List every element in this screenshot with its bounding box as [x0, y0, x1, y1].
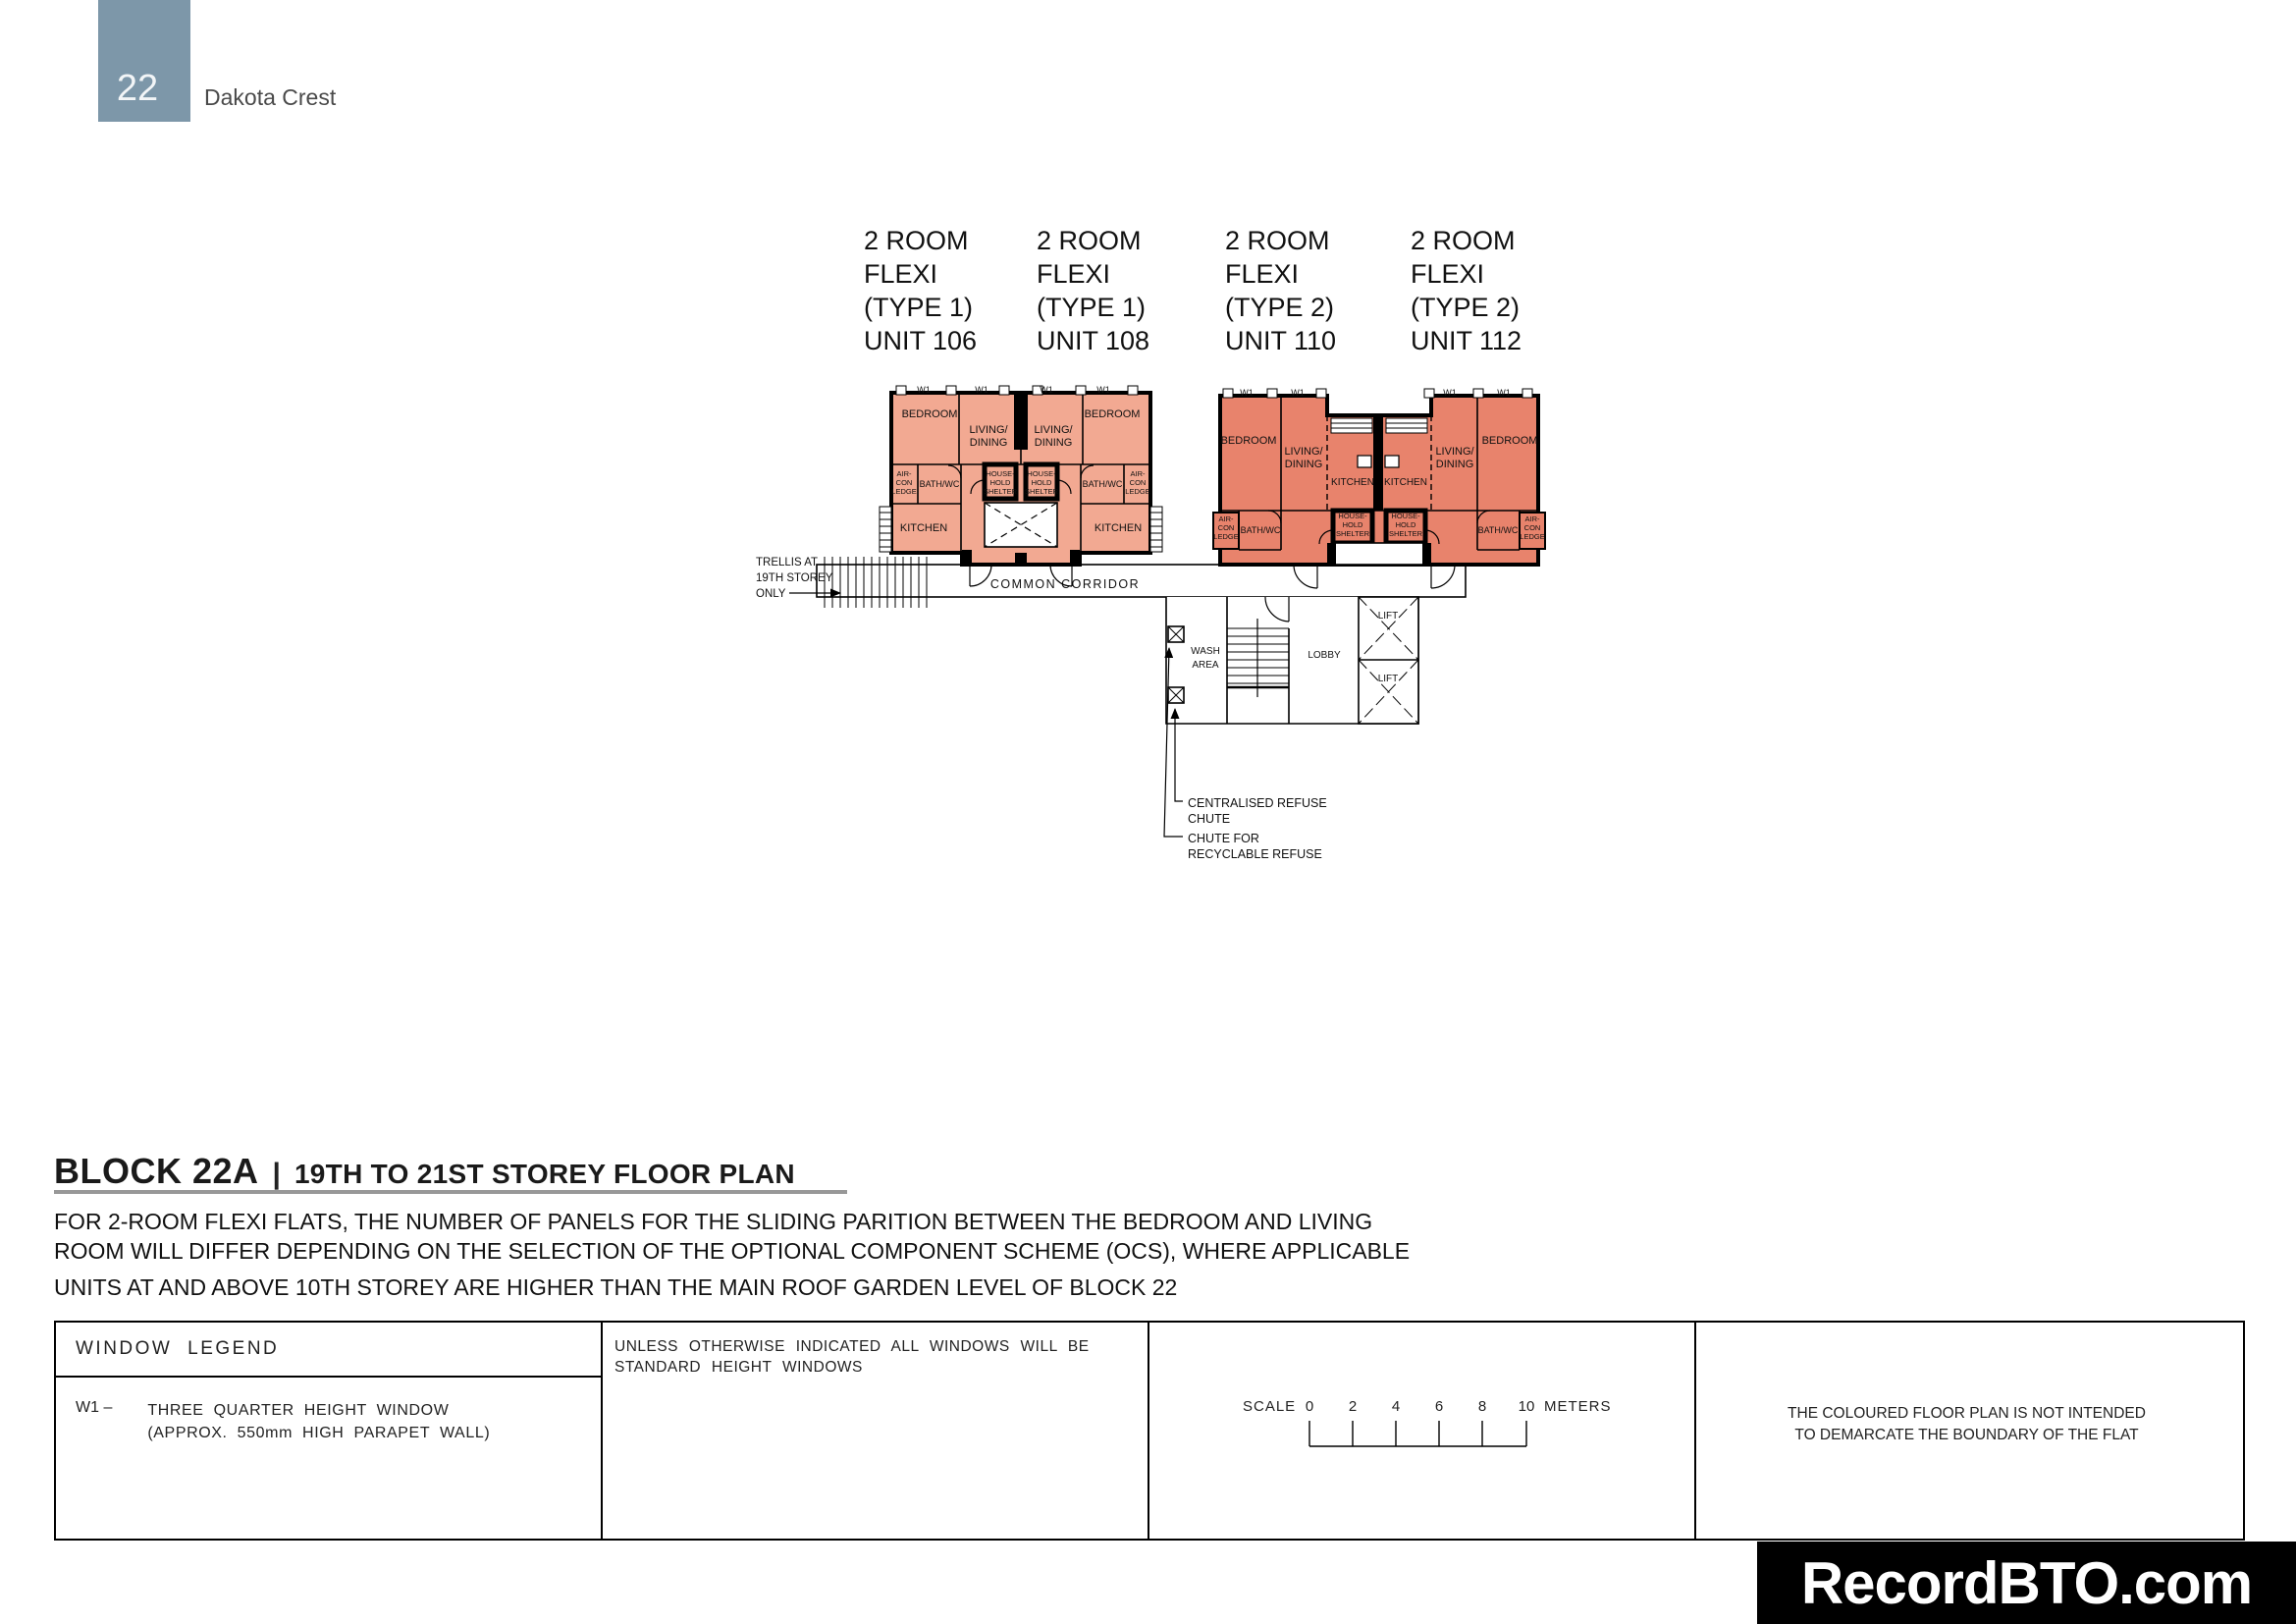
legend-divider	[56, 1376, 601, 1378]
unit-label-112: 2 ROOM FLEXI (TYPE 2) UNIT 112	[1411, 224, 1597, 357]
room-label-shelter: SHELTER	[1025, 487, 1059, 496]
unit-label-106: 2 ROOM FLEXI (TYPE 1) UNIT 106	[864, 224, 1050, 357]
room-label-shelter: HOUSE-	[1391, 512, 1420, 520]
block-type1: W1 W1 W1 W1 BEDROOM BEDROOM LIVING/ DINI…	[880, 385, 1162, 586]
room-label-kitchen: KITCHEN	[1384, 477, 1427, 488]
room-label-aircon: LEDGE	[1213, 532, 1238, 541]
note-line: UNITS AT AND ABOVE 10TH STOREY ARE HIGHE…	[54, 1274, 1177, 1301]
window-tag: W1	[975, 385, 988, 395]
watermark-text: RecordBTO.com	[1801, 1549, 2252, 1617]
unit-label-line: (TYPE 2)	[1411, 291, 1597, 324]
room-label-living: DINING	[1436, 459, 1474, 470]
room-label-living: DINING	[1035, 437, 1073, 449]
room-label-aircon: AIR-	[897, 469, 913, 478]
windows-note: STANDARD HEIGHT WINDOWS	[614, 1357, 1090, 1378]
trellis-label: 19TH STOREY	[756, 572, 833, 584]
common-corridor: COMMON CORRIDOR	[817, 565, 1466, 597]
scale-tick-label: 4	[1392, 1398, 1400, 1415]
room-label-living: DINING	[1285, 459, 1323, 470]
room-label-shelter: HOLD	[1343, 520, 1363, 529]
trellis-annotation: TRELLIS AT 19TH STOREY ONLY	[756, 557, 840, 600]
w1-code: W1 –	[76, 1399, 112, 1444]
room-label-living: LIVING/	[1435, 446, 1474, 458]
room-label-shelter: HOUSE-	[986, 469, 1015, 478]
unit-label-line: (TYPE 1)	[1037, 291, 1223, 324]
lifts: LIFT LIFT	[1359, 597, 1418, 724]
note-line: FOR 2-ROOM FLEXI FLATS, THE NUMBER OF PA…	[54, 1209, 1372, 1235]
windows-note: UNLESS OTHERWISE INDICATED ALL WINDOWS W…	[614, 1336, 1090, 1357]
disclaimer-line: THE COLOURED FLOOR PLAN IS NOT INTENDED	[1696, 1403, 2237, 1425]
room-label-aircon: AIR-	[1219, 514, 1235, 523]
unit-label-line: FLEXI	[1225, 257, 1412, 291]
lobby-label: LOBBY	[1308, 650, 1341, 661]
lift-label: LIFT	[1378, 611, 1399, 622]
window-tag: W1	[1096, 385, 1110, 395]
project-name: Dakota Crest	[204, 84, 336, 111]
room-label-aircon: CON	[1218, 523, 1235, 532]
floor-plan-page: 22 Dakota Crest 2 ROOM FLEXI (TYPE 1) UN…	[0, 0, 2296, 1624]
scale-bar: SCALE 0 2 4 6 8 10 METERS	[1149, 1323, 1694, 1535]
plan-title: BLOCK 22A | 19TH TO 21ST STOREY FLOOR PL…	[54, 1151, 795, 1192]
room-label-aircon: CON	[1524, 523, 1541, 532]
title-separator: |	[273, 1158, 281, 1191]
trellis-label: TRELLIS AT	[756, 557, 818, 568]
unit-label-line: 2 ROOM	[1037, 224, 1223, 257]
room-label-living: LIVING/	[1034, 424, 1073, 436]
wash-area-label: WASH	[1191, 646, 1220, 657]
core: LIFT LIFT WASH AREA LOBBY	[1166, 597, 1418, 724]
room-label-aircon: CON	[1130, 478, 1147, 487]
chute-label: CHUTE	[1188, 812, 1230, 826]
window-tag: W1	[1040, 385, 1053, 395]
room-label-shelter: HOLD	[1396, 520, 1416, 529]
legend-table: WINDOW LEGEND W1 – THREE QUARTER HEIGHT …	[54, 1321, 2245, 1541]
scale-tick-label: 8	[1478, 1398, 1486, 1415]
lift-label: LIFT	[1378, 674, 1399, 684]
storey-subtitle: 19TH TO 21ST STOREY FLOOR PLAN	[294, 1159, 795, 1190]
room-label-bedroom: BEDROOM	[1482, 435, 1538, 447]
scale-tick-label: 2	[1349, 1398, 1357, 1415]
room-label-shelter: HOLD	[1032, 478, 1052, 487]
room-label-bedroom: BEDROOM	[1221, 435, 1277, 447]
disclaimer-line: TO DEMARCATE THE BOUNDARY OF THE FLAT	[1696, 1425, 2237, 1446]
room-label-bath: BATH/WC	[1478, 525, 1519, 535]
corridor-label: COMMON CORRIDOR	[990, 577, 1140, 591]
note-line: ROOM WILL DIFFER DEPENDING ON THE SELECT…	[54, 1238, 1410, 1265]
block-type2: W1 W1 W1 W1 BEDROOM BEDROOM LIVING/ DINI…	[1213, 388, 1545, 588]
scale-label: SCALE	[1243, 1398, 1296, 1415]
room-label-aircon: LEDGE	[891, 487, 916, 496]
unit-label-line: UNIT 108	[1037, 324, 1223, 357]
room-label-bath: BATH/WC	[920, 479, 960, 489]
unit-label-line: FLEXI	[864, 257, 1050, 291]
scale-tick-label: 10	[1519, 1398, 1535, 1415]
w1-description: (APPROX. 550mm HIGH PARAPET WALL)	[147, 1422, 490, 1444]
unit-label-line: 2 ROOM	[864, 224, 1050, 257]
room-label-shelter: HOUSE-	[1027, 469, 1056, 478]
page-number: 22	[98, 68, 177, 110]
room-label-aircon: AIR-	[1525, 514, 1541, 523]
room-label-bedroom: BEDROOM	[1085, 408, 1141, 420]
window-tag: W1	[1497, 388, 1511, 398]
w1-legend-row: W1 – THREE QUARTER HEIGHT WINDOW (APPROX…	[76, 1399, 490, 1444]
trellis-label: ONLY	[756, 588, 786, 600]
window-tag: W1	[1291, 388, 1305, 398]
scale-unit: METERS	[1544, 1398, 1612, 1415]
room-label-kitchen: KITCHEN	[1095, 522, 1142, 534]
room-label-kitchen: KITCHEN	[900, 522, 947, 534]
window-tag: W1	[1443, 388, 1457, 398]
unit-label-line: FLEXI	[1037, 257, 1223, 291]
room-label-aircon: AIR-	[1131, 469, 1147, 478]
room-label-living: LIVING/	[1284, 446, 1323, 458]
scale-tick-label: 0	[1306, 1398, 1313, 1415]
unit-label-line: (TYPE 1)	[864, 291, 1050, 324]
unit-label-line: UNIT 112	[1411, 324, 1597, 357]
windows-note-cell: UNLESS OTHERWISE INDICATED ALL WINDOWS W…	[603, 1323, 1149, 1539]
room-label-shelter: SHELTER	[1389, 529, 1423, 538]
unit-label-line: UNIT 106	[864, 324, 1050, 357]
floor-plan-drawing: COMMON CORRIDOR	[741, 378, 1575, 889]
room-label-aircon: CON	[896, 478, 913, 487]
chute-label: CHUTE FOR	[1188, 832, 1259, 845]
room-label-kitchen: KITCHEN	[1331, 477, 1374, 488]
window-legend-cell: WINDOW LEGEND W1 – THREE QUARTER HEIGHT …	[56, 1323, 603, 1539]
room-label-bedroom: BEDROOM	[902, 408, 958, 420]
room-label-shelter: HOUSE-	[1338, 512, 1367, 520]
w1-description: THREE QUARTER HEIGHT WINDOW	[147, 1399, 490, 1422]
scale-tick-label: 6	[1435, 1398, 1443, 1415]
room-label-bath: BATH/WC	[1241, 525, 1281, 535]
title-underline	[54, 1190, 847, 1194]
window-legend-header: WINDOW LEGEND	[76, 1338, 279, 1360]
unit-label-110: 2 ROOM FLEXI (TYPE 2) UNIT 110	[1225, 224, 1412, 357]
room-label-shelter: SHELTER	[1336, 529, 1370, 538]
scale-bar-cell: SCALE 0 2 4 6 8 10 METERS	[1149, 1323, 1696, 1539]
unit-label-line: 2 ROOM	[1411, 224, 1597, 257]
room-label-bath: BATH/WC	[1083, 479, 1123, 489]
room-label-aircon: LEDGE	[1520, 532, 1544, 541]
unit-label-line: UNIT 110	[1225, 324, 1412, 357]
room-label-shelter: HOLD	[990, 478, 1011, 487]
chute-label: RECYCLABLE REFUSE	[1188, 847, 1322, 861]
room-label-aircon: LEDGE	[1125, 487, 1149, 496]
window-tag: W1	[1240, 388, 1254, 398]
page-number-tab: 22	[98, 0, 190, 122]
unit-label-line: FLEXI	[1411, 257, 1597, 291]
room-label-living: DINING	[970, 437, 1008, 449]
window-tag: W1	[917, 385, 931, 395]
unit-label-line: 2 ROOM	[1225, 224, 1412, 257]
wash-area-label: AREA	[1192, 660, 1219, 671]
unit-label-line: (TYPE 2)	[1225, 291, 1412, 324]
watermark: RecordBTO.com	[1757, 1542, 2296, 1624]
block-title: BLOCK 22A	[54, 1151, 259, 1192]
room-label-living: LIVING/	[969, 424, 1008, 436]
unit-label-108: 2 ROOM FLEXI (TYPE 1) UNIT 108	[1037, 224, 1223, 357]
room-label-shelter: SHELTER	[984, 487, 1018, 496]
disclaimer-cell: THE COLOURED FLOOR PLAN IS NOT INTENDED …	[1696, 1323, 2237, 1539]
chute-label: CENTRALISED REFUSE	[1188, 796, 1327, 810]
